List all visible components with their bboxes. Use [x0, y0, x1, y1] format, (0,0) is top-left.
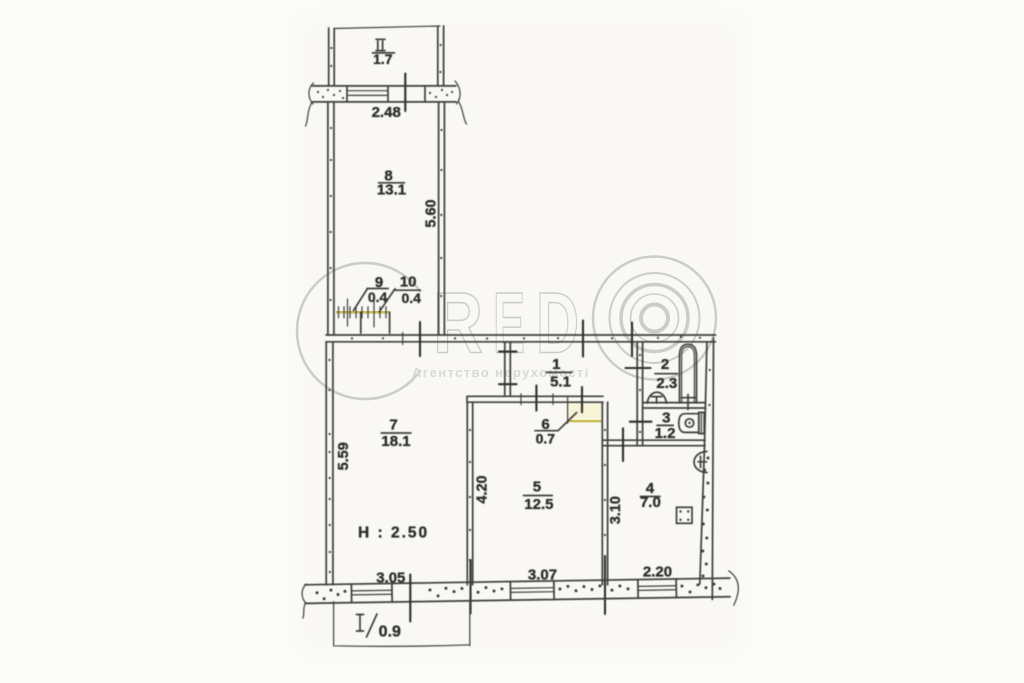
svg-text:E: E	[493, 276, 525, 372]
svg-text:18.1: 18.1	[381, 433, 410, 450]
svg-text:5.1: 5.1	[550, 374, 571, 391]
svg-text:2: 2	[661, 356, 669, 373]
svg-text:5.60: 5.60	[424, 199, 440, 227]
svg-text:13.1: 13.1	[377, 182, 406, 199]
svg-text:3.05: 3.05	[376, 570, 405, 587]
svg-text:5: 5	[533, 479, 541, 496]
svg-text:1.7: 1.7	[373, 51, 393, 67]
svg-text:2.48: 2.48	[372, 104, 401, 121]
svg-text:1: 1	[552, 356, 560, 373]
svg-text:0.9: 0.9	[379, 624, 401, 641]
svg-text:0.4: 0.4	[401, 290, 421, 306]
svg-text:2.20: 2.20	[643, 564, 672, 581]
svg-text:0.4: 0.4	[368, 289, 388, 305]
svg-text:7.0: 7.0	[640, 494, 661, 511]
svg-text:0.7: 0.7	[536, 431, 556, 447]
svg-text:R: R	[433, 276, 483, 372]
svg-text:12.5: 12.5	[524, 496, 553, 513]
svg-text:2.3: 2.3	[656, 375, 677, 392]
svg-text:H : 2.50: H : 2.50	[358, 525, 429, 542]
svg-text:10: 10	[400, 274, 417, 291]
svg-text:5.59: 5.59	[336, 442, 352, 470]
svg-text:1.2: 1.2	[655, 425, 676, 442]
svg-text:4.20: 4.20	[475, 475, 491, 503]
svg-text:3.10: 3.10	[608, 496, 624, 524]
svg-text:3.07: 3.07	[528, 567, 557, 584]
svg-text:7: 7	[389, 417, 397, 434]
